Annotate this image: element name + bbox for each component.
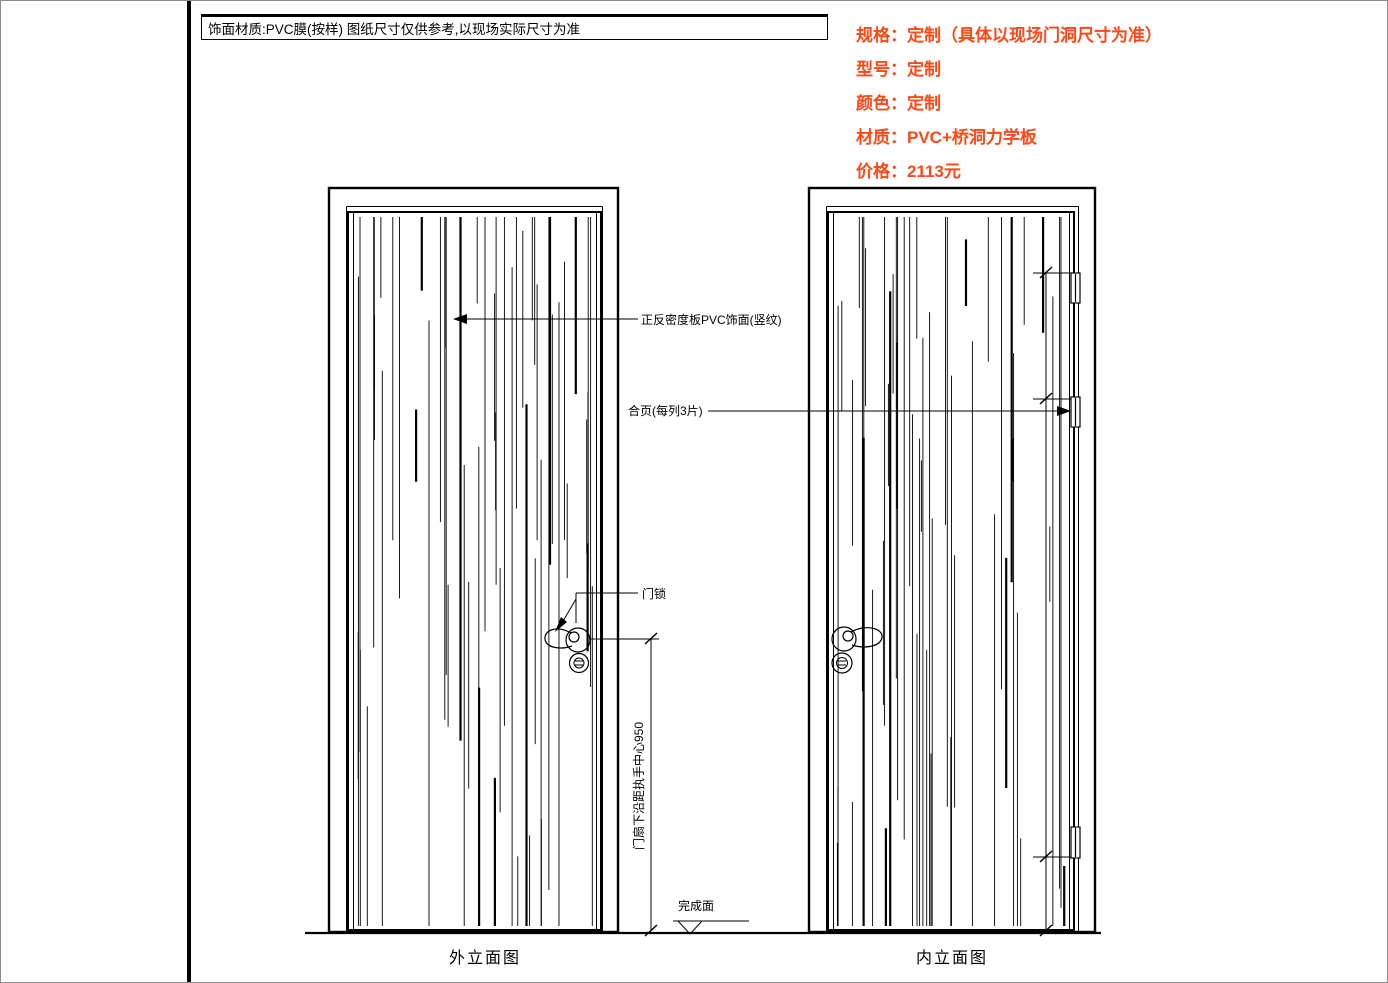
hinge-spacing-dimension: [1033, 267, 1071, 936]
exterior-door-handle: [545, 628, 590, 673]
surface-leader-line: [453, 314, 638, 324]
spec-label: 价格：: [856, 162, 907, 181]
exterior-view-label: 外立面图: [420, 944, 550, 968]
spec-value: 定制: [907, 94, 941, 113]
material-note: 饰面材质:PVC膜(按样) 图纸尺寸仅供参考,以现场实际尺寸为准: [201, 14, 828, 40]
spec-label: 颜色：: [856, 94, 907, 113]
surface-leader-label: 正反密度板PVC饰面(竖纹): [641, 311, 782, 328]
lock-leader-label: 门锁: [642, 585, 666, 602]
spec-row-1: 型号：定制: [856, 53, 1256, 87]
hinge-leader-label: 合页(每列3片): [628, 402, 703, 419]
handle-height-dim-label: 门扇下沿距执手中心950: [630, 722, 647, 850]
exterior-door-grain: [358, 217, 592, 926]
exterior-door-frame: [329, 188, 618, 932]
hinge-top: [1071, 273, 1080, 303]
finish-level-label: 完成面: [678, 897, 714, 914]
handle-height-dimension: [589, 633, 659, 936]
spec-value: 2113元: [907, 162, 961, 181]
spec-row-2: 颜色：定制: [856, 87, 1256, 121]
spec-row-3: 材质：PVC+桥洞力学板: [856, 121, 1256, 155]
drawing-sheet: 饰面材质:PVC膜(按样) 图纸尺寸仅供参考,以现场实际尺寸为准 规格：定制（具…: [0, 0, 1388, 983]
spec-row-4: 价格：2113元: [856, 155, 1256, 189]
interior-view-label: 内立面图: [887, 944, 1017, 968]
spec-value: 定制: [907, 60, 941, 79]
spec-row-0: 规格：定制（具体以现场门洞尺寸为准）: [856, 19, 1256, 53]
spec-value: 定制（具体以现场门洞尺寸为准）: [907, 26, 1162, 45]
spec-label: 型号：: [856, 60, 907, 79]
hinge-middle: [1071, 397, 1080, 427]
spec-value: PVC+桥洞力学板: [907, 128, 1037, 147]
spec-panel: 规格：定制（具体以现场门洞尺寸为准）型号：定制颜色：定制材质：PVC+桥洞力学板…: [856, 19, 1256, 189]
hinge-bottom: [1071, 827, 1080, 858]
interior-door-frame: [809, 188, 1095, 932]
interior-door-handle: [832, 627, 882, 673]
spec-label: 规格：: [856, 26, 907, 45]
interior-door-grain: [837, 217, 1064, 926]
spec-label: 材质：: [856, 128, 907, 147]
